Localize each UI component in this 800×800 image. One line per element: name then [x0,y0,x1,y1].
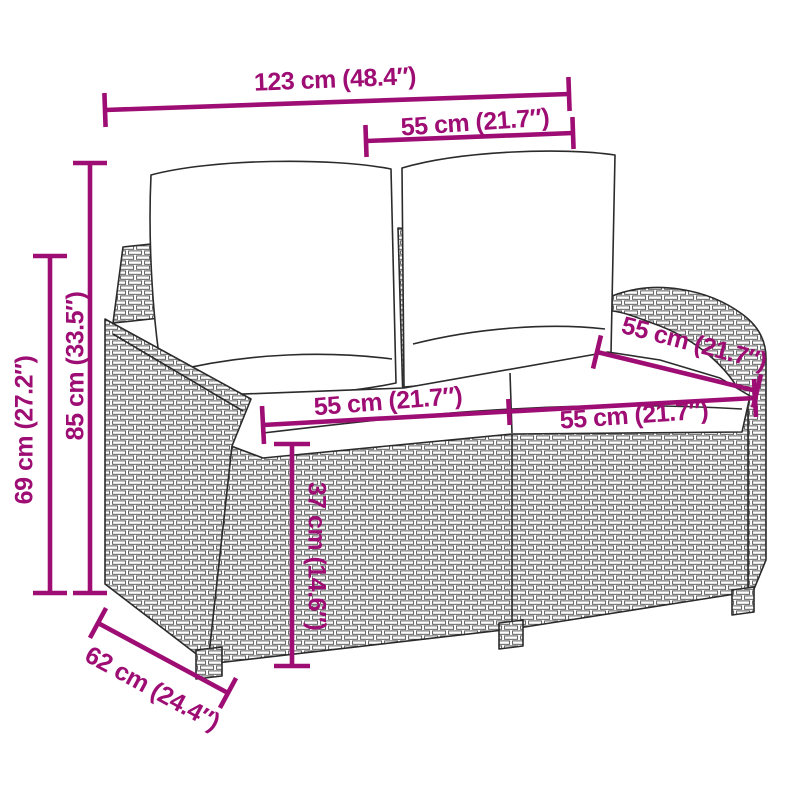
foot-left [196,647,222,679]
dimension-label-overall-width: 123 cm (48.4″) [254,64,417,95]
dimension-label-arm-height: 69 cm (27.2″) [13,356,38,505]
product-dimension-image: 123 cm (48.4″) 55 cm (21.7″) 85 cm (33.5… [0,0,800,800]
foot-right [732,587,754,615]
back-cushion-left [150,161,396,398]
back-cushion-right [402,151,615,387]
dimension-label-overall-height: 85 cm (33.5″) [64,292,89,441]
foot-middle [499,620,523,649]
dimension-label-seat-height: 37 cm (14.6″) [304,482,329,631]
